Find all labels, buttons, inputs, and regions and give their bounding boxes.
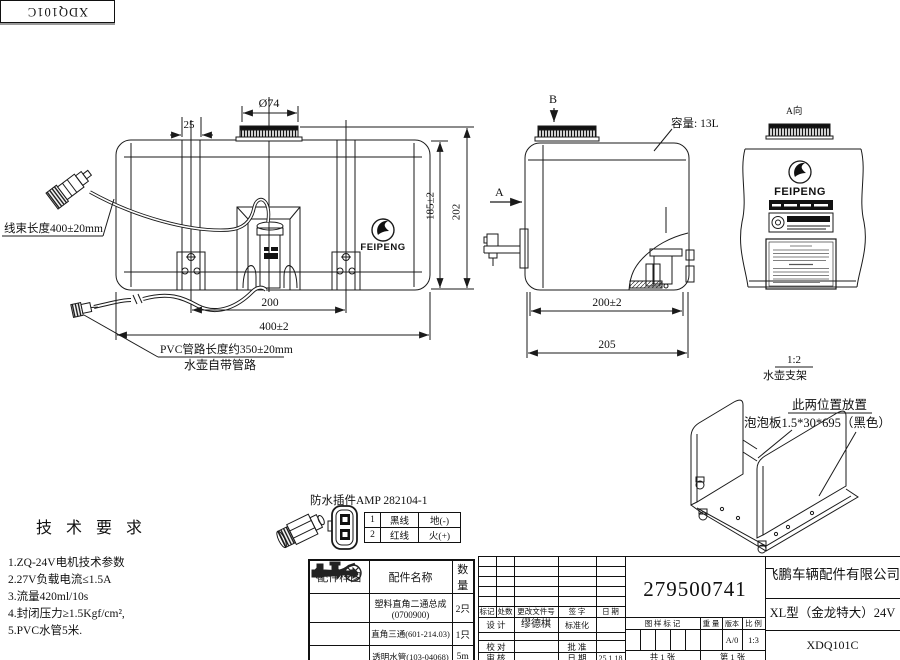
tb-drawing-number: 279500741 (625, 577, 765, 601)
wire-row: 1 黑线 地(-) (365, 513, 461, 528)
tech-requirement-item: 2.27V负载电流≤1.5A (8, 571, 111, 587)
wire-function: 地(-) (419, 513, 461, 528)
wire-no: 2 (365, 528, 381, 543)
tb-col-count: 处数 (496, 608, 514, 617)
wire-color: 红线 (381, 528, 419, 543)
tb-col-file: 更改文件号 (514, 608, 558, 617)
elbow-assembly-icon (309, 594, 369, 623)
tb-stamp-label: 图 样 标 记 (625, 620, 700, 629)
tb-col-sign: 签 字 (558, 608, 596, 617)
pump-label (264, 247, 278, 259)
harness-connector (46, 165, 96, 209)
tb-scale-label: 比 例 (742, 620, 765, 629)
parts-row: 塑料直角二通总成 (0700900) 2只 (309, 594, 474, 623)
waterproof-connector-drawing (274, 506, 357, 551)
dim-inner-width: 200±2 (577, 297, 637, 310)
tb-col-date: 日 期 (596, 608, 625, 617)
dim-cap-diameter: Ø74 (240, 97, 298, 111)
tb-designer: 缪德棋 (514, 619, 558, 631)
pipe-note-label: 水壶自带管路 (184, 359, 256, 373)
tb-company: 飞鹏车辆配件有限公司 (765, 567, 900, 583)
tb-design-label: 设 计 (478, 621, 514, 631)
bracket-note-line1: 此两位置放置 (792, 398, 867, 412)
tube-icon (309, 646, 369, 660)
tb-version-label: 版本 (722, 620, 742, 628)
tech-requirement-item: 5.PVC水管5米. (8, 622, 82, 638)
sheet-corner-code-box: XDQ101C (0, 0, 115, 23)
parts-name: 透明水管(103-04068) (369, 646, 452, 660)
bracket-note-line2: 泡泡板1.5*30*695（黑色） (744, 416, 891, 430)
front-view-tank (46, 97, 430, 317)
harness-length-label: 线束长度400±20mm (4, 223, 103, 236)
feipeng-brand-aview: FEIPENG (769, 186, 831, 199)
tb-check-label: 校 对 (478, 643, 514, 653)
parts-qty: 5m (452, 646, 474, 660)
parts-qty: 2只 (452, 594, 474, 623)
a-view-title: A向 (786, 107, 802, 118)
tb-code: XDQ101C (765, 639, 900, 653)
tb-scale-value: 1:3 (742, 636, 765, 646)
tb-weight-label: 重 量 (700, 620, 722, 629)
label-fine-print (773, 246, 829, 283)
sheet-corner-code: XDQ101C (1, 1, 114, 22)
tb-date-value: 25.1.18 (596, 654, 625, 660)
tb-approve-label: 批 准 (558, 643, 596, 653)
dim-body-height: 185±2 (425, 192, 438, 220)
parts-name: 塑料直角二通总成 (0700900) (369, 594, 452, 623)
wire-color: 黑线 (381, 513, 419, 528)
bracket-scale: 1:2 (775, 354, 813, 367)
section-b-label: B (549, 93, 557, 107)
tb-version-value: A/0 (722, 636, 742, 646)
parts-header-qty: 数量 (452, 560, 474, 594)
parts-qty: 1只 (452, 623, 474, 646)
tb-date-label: 日 期 (558, 654, 596, 660)
tb-model: XL型（金龙特大）24V (765, 606, 900, 620)
section-a-label: A (495, 186, 504, 200)
dim-strap-offset: 25 (176, 119, 202, 132)
connector-wire-table: 1 黑线 地(-) 2 红线 火(+) (364, 512, 461, 543)
tb-standard-label: 标准化 (558, 621, 596, 630)
side-view-tank (484, 108, 694, 290)
tb-col-mark: 标记 (478, 608, 496, 617)
parts-row: 透明水管(103-04068) 5m (309, 646, 474, 660)
tech-requirement-item: 3.流量420ml/10s (8, 588, 88, 604)
parts-table: 配件样图 配件名称 数量 塑料直角二通总成 (0700900) 2只 (308, 559, 475, 660)
wire-no: 1 (365, 513, 381, 528)
tech-requirement-item: 4.封闭压力≥1.5Kgf/cm², (8, 605, 125, 621)
wire-function: 火(+) (419, 528, 461, 543)
tb-sheet-total: 共 1 张 (625, 653, 700, 660)
bracket-view (691, 367, 872, 553)
connector-title: 防水插件AMP 282104-1 (310, 495, 427, 508)
dim-total-height: 202 (451, 204, 464, 221)
tb-sheet-index: 第 1 张 (700, 653, 765, 660)
parts-name-line2: (0700900) (370, 610, 452, 620)
parts-header-name: 配件名称 (369, 560, 452, 594)
bracket-name: 水壶支架 (763, 370, 807, 383)
feipeng-brand-front: FEIPENG (354, 243, 412, 254)
capacity-label: 容量: 13L (671, 118, 719, 131)
drawing-sheet: XDQ101C Ø74 25 185±2 202 200 400±2 线束长度4… (0, 0, 900, 660)
wire-row: 2 红线 火(+) (365, 528, 461, 543)
dim-pump-spacing: 200 (250, 297, 290, 310)
a-view-panel (741, 124, 866, 289)
tb-audit-label: 审 核 (478, 654, 514, 660)
parts-row: 直角三通(601-214.03) 1只 (309, 623, 474, 646)
parts-name: 直角三通(601-214.03) (369, 623, 452, 646)
tech-requirements-title: 技 术 要 求 (36, 520, 147, 538)
dim-body-width: 400±2 (246, 321, 302, 334)
tech-requirement-item: 1.ZQ-24V电机技术参数 (8, 554, 125, 570)
parts-name-line1: 塑料直角二通总成 (370, 597, 452, 610)
tee-fitting-icon (309, 623, 369, 646)
dim-outer-width: 205 (580, 339, 634, 352)
pvc-length-label: PVC管路长度约350±20mm (160, 344, 293, 357)
